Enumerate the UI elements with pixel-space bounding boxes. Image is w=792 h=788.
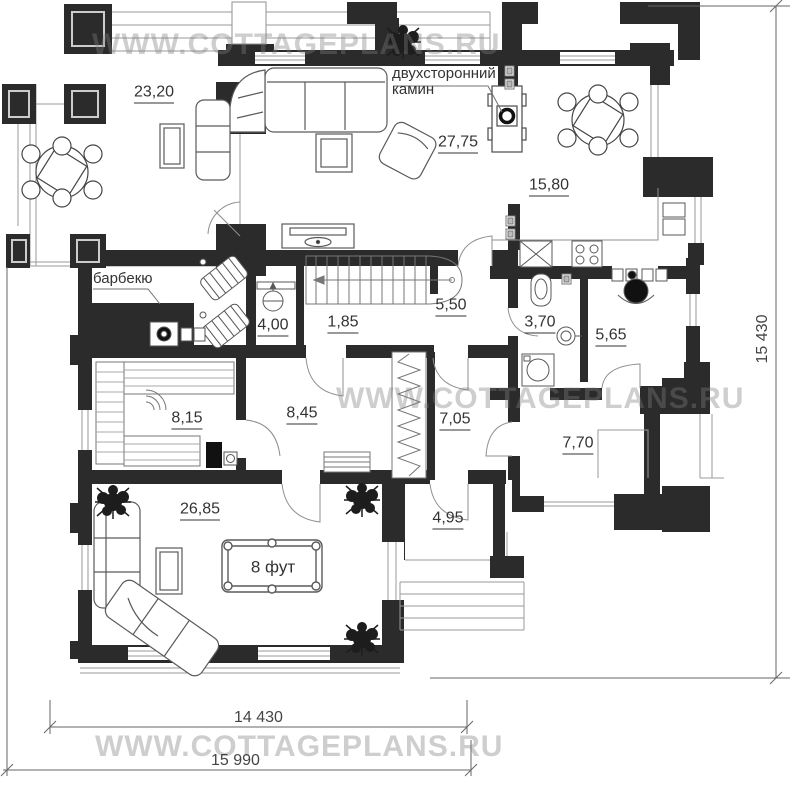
area-label-terrace: 23,20 — [134, 85, 174, 104]
area-label-living: 27,75 — [438, 135, 478, 154]
area-label-room-4-00: 4,00 — [257, 318, 288, 337]
terrace-coffee-table — [160, 124, 184, 168]
billiard-coffee-table — [156, 548, 182, 594]
living-armchair — [376, 120, 438, 182]
floor-plan-page: WWW.COTTAGEPLANS.RU WWW.COTTAGEPLANS.RU … — [0, 0, 792, 788]
area-label-entry: 7,70 — [562, 436, 593, 455]
sauna-heater — [206, 442, 237, 468]
entry-details — [598, 414, 724, 478]
fireplace-note: двухсторонний камин — [392, 66, 496, 98]
watermark-bottom: WWW.COTTAGEPLANS.RU — [95, 730, 503, 764]
hall-bench — [324, 452, 370, 472]
area-label-bathroom: 3,70 — [524, 315, 555, 334]
area-label-room-7-05: 7,05 — [439, 412, 470, 431]
terrace-sofa — [196, 100, 230, 180]
loungers — [199, 254, 252, 350]
fireplace-note-line1: двухсторонний — [392, 66, 496, 82]
watermark-middle: WWW.COTTAGEPLANS.RU — [336, 382, 744, 416]
fireplace-note-line2: камин — [392, 82, 496, 98]
dimension-right: 15 430 — [754, 303, 772, 375]
living-coffee-table — [316, 134, 352, 172]
kitchen-sink — [520, 241, 552, 267]
area-label-hall: 8,45 — [286, 406, 317, 425]
dimension-bottom-outer: 15 990 — [211, 752, 260, 770]
dimension-bottom-inner: 14 430 — [234, 709, 283, 727]
fridge — [663, 203, 685, 235]
barbecue-note: барбекю — [93, 271, 153, 287]
tv-console — [282, 224, 354, 248]
area-label-porch: 4,95 — [432, 511, 463, 530]
barbecue-grill — [150, 322, 205, 346]
area-label-billiard: 26,85 — [180, 502, 220, 521]
study-desk — [612, 269, 667, 304]
area-label-stair-hall: 1,85 — [327, 315, 358, 334]
porch-steps — [400, 532, 524, 630]
area-label-corridor: 5,50 — [435, 298, 466, 317]
kitchen-stove — [572, 241, 602, 267]
living-sofa — [229, 68, 387, 132]
area-label-dining: 15,80 — [529, 178, 569, 197]
room-4-00-fixture — [257, 282, 295, 311]
dining-table — [558, 85, 638, 155]
area-label-sauna: 8,15 — [171, 411, 202, 430]
terrace-table — [22, 137, 102, 207]
area-label-study: 5,65 — [595, 328, 626, 347]
watermark-top: WWW.COTTAGEPLANS.RU — [92, 28, 500, 62]
pool-table-label: 8 фут — [251, 559, 295, 576]
